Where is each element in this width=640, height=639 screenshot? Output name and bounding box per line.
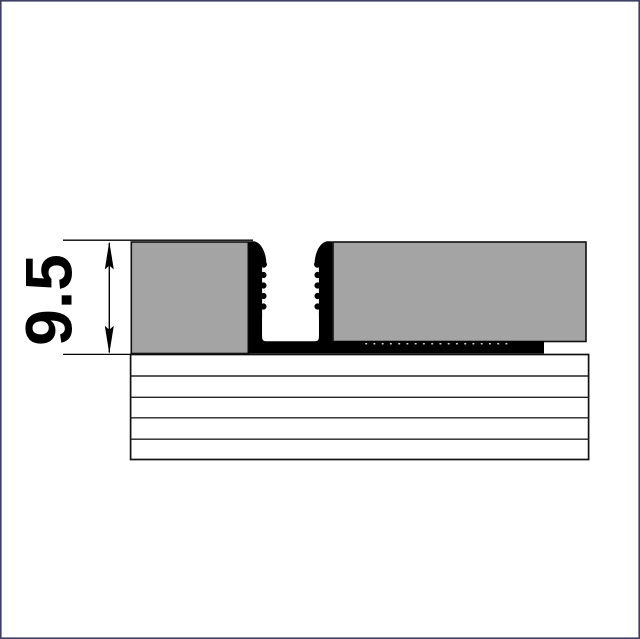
svg-text:9.5: 9.5 — [12, 254, 86, 346]
